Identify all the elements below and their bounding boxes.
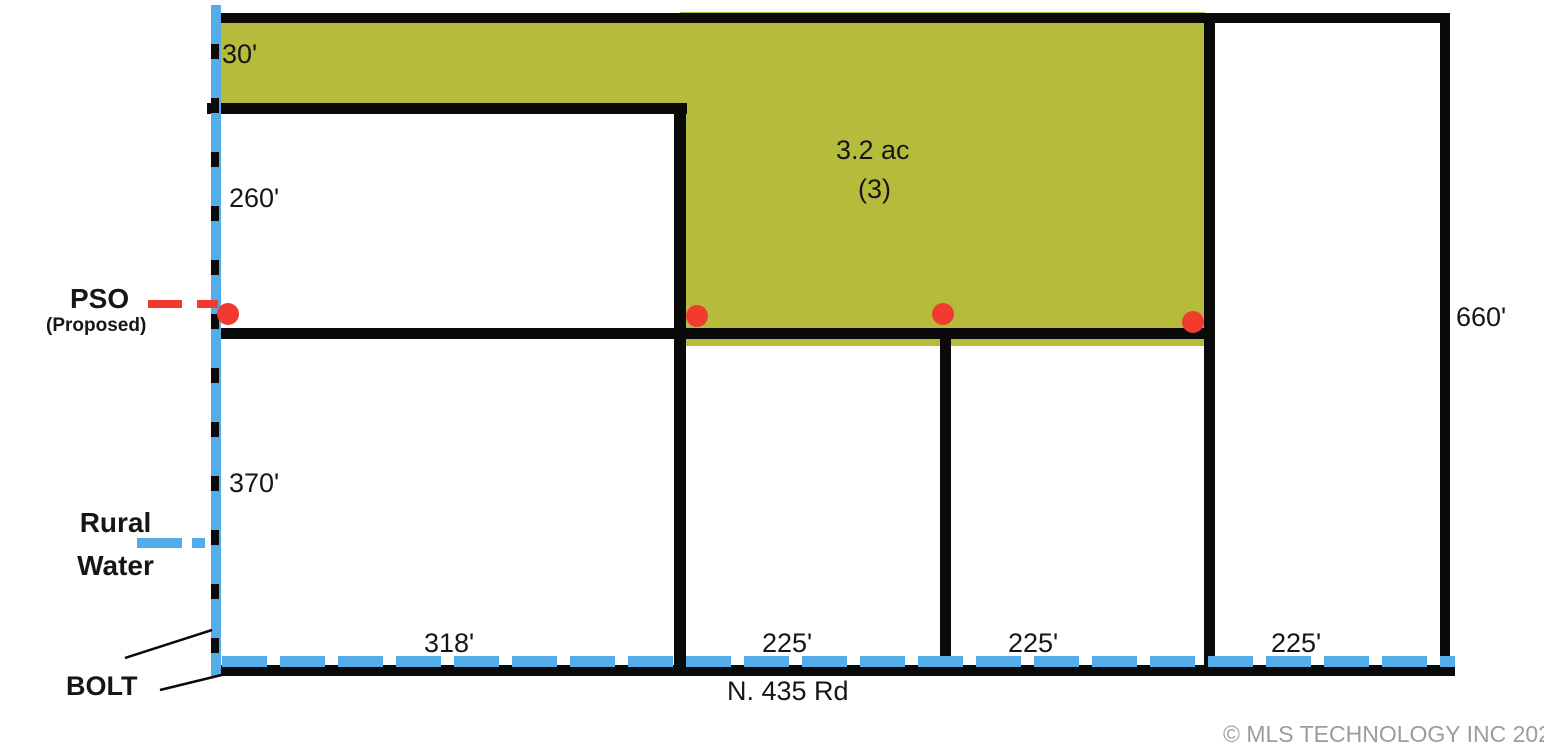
- dimension-label-225ft-2: 225': [1008, 629, 1058, 657]
- dimension-label-660ft: 660': [1456, 303, 1506, 331]
- dimension-label-225ft-3: 225': [1271, 629, 1321, 657]
- pso-service-dot-1: [217, 303, 239, 325]
- dimension-label-370ft: 370': [229, 469, 279, 497]
- rural-water-label-line1: Rural: [38, 501, 193, 544]
- rural-water-label-line2: Water: [38, 544, 193, 587]
- boundary-left-dashed-line: [211, 5, 219, 676]
- dimension-label-30ft: 30': [222, 40, 257, 68]
- bolt-pointer-line-1: [125, 630, 212, 658]
- inner-line-mid-horizontal: [212, 328, 1215, 339]
- pso-proposed-label: (Proposed): [46, 316, 146, 336]
- pso-service-dot-3: [932, 303, 954, 325]
- dimension-label-260ft: 260': [229, 184, 279, 212]
- dimension-label-225ft-1: 225': [762, 629, 812, 657]
- copyright-notice: © MLS TECHNOLOGY INC 2025: [1223, 721, 1544, 748]
- lot-divider-right: [1204, 13, 1215, 676]
- pso-service-dot-4: [1182, 311, 1204, 333]
- parcel-lot-number-label: (3): [858, 175, 891, 203]
- plat-diagram: 30' 260' 370' 660' 318' 225' 225' 225' 3…: [0, 0, 1544, 755]
- lot-divider-left: [674, 103, 686, 676]
- pso-service-dot-2: [686, 305, 708, 327]
- highlighted-parcel-main: [680, 12, 1205, 346]
- dimension-label-318ft: 318': [424, 629, 474, 657]
- inner-line-30ft-setback: [207, 103, 687, 114]
- rural-water-label: Rural Water: [38, 501, 193, 587]
- pso-label: PSO: [70, 284, 129, 313]
- boundary-right-line: [1440, 13, 1450, 676]
- parcel-area-label: 3.2 ac: [836, 136, 910, 164]
- bolt-label: BOLT: [66, 672, 137, 700]
- pso-proposed-line: [148, 300, 218, 308]
- road-name-label: N. 435 Rd: [727, 677, 849, 705]
- boundary-top-line: [211, 13, 1450, 23]
- lot-divider-middle: [940, 330, 951, 676]
